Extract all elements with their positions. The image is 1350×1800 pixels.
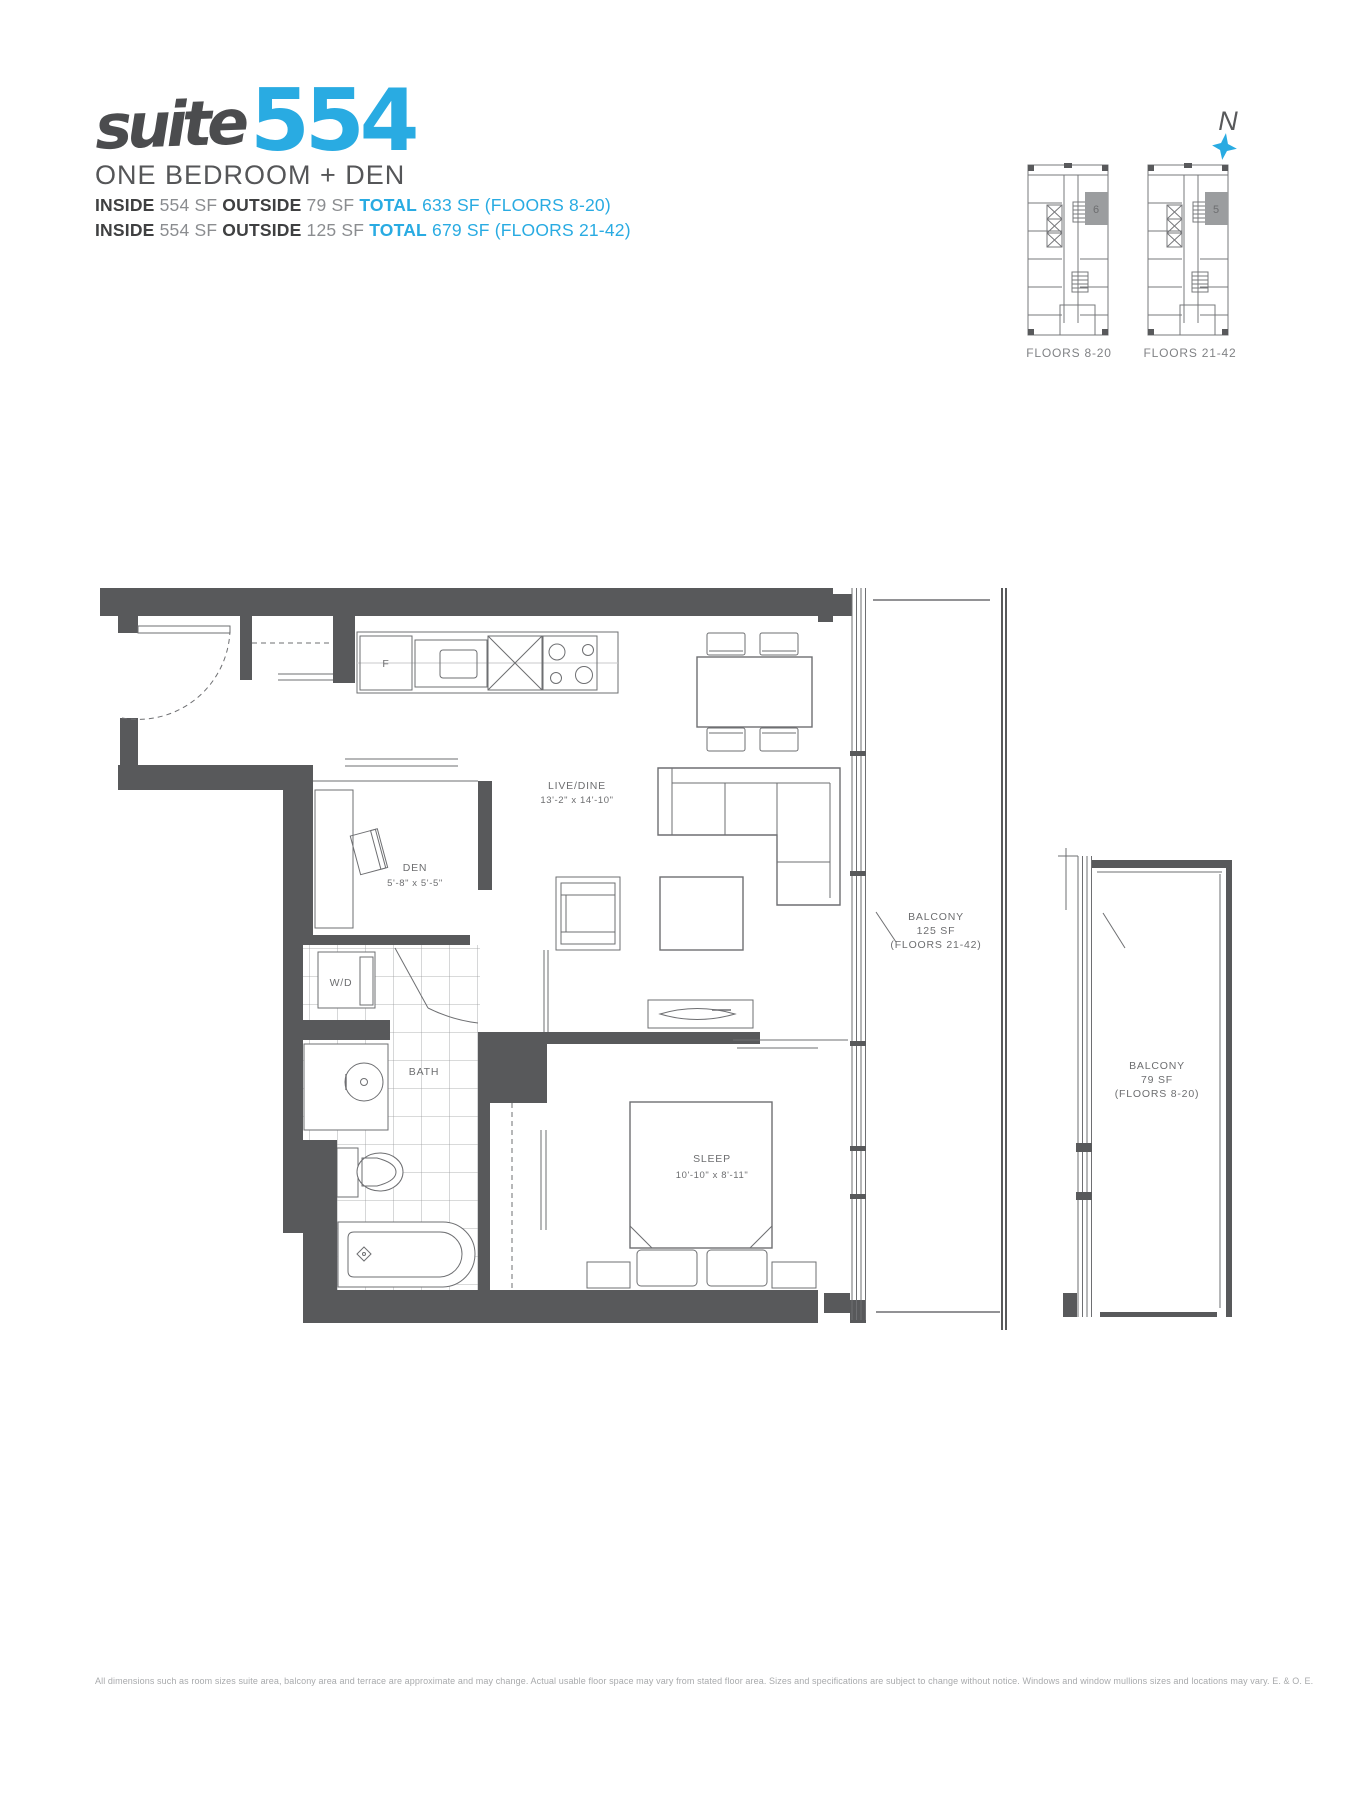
dining-table: [697, 633, 812, 751]
walls: [100, 588, 866, 1323]
wd-closet: W/D: [318, 952, 375, 1008]
balcony-79: BALCONY 79 SF (FLOORS 8-20): [1058, 848, 1232, 1317]
keyplan-floors-21-42: 5 FLOORS 21-42: [1144, 163, 1237, 360]
media-console: [648, 1000, 753, 1028]
keyplan-label: FLOORS 21-42: [1144, 346, 1237, 360]
bathtub: [338, 1222, 475, 1287]
den: [313, 759, 478, 928]
live-dine-label: LIVE/DINE: [548, 780, 606, 792]
coffee-table: [660, 877, 743, 950]
fridge-label: F: [382, 658, 389, 670]
floorplan-page: suite 554 ONE BEDROOM + DEN INSIDE 554 S…: [0, 0, 1350, 1800]
den-dims: 5'-8" x 5'-5": [387, 878, 443, 889]
balcony-125-name: BALCONY: [908, 911, 964, 923]
balcony-125-floors: (FLOORS 21-42): [890, 939, 981, 951]
balcony-125: BALCONY 125 SF (FLOORS 21-42): [873, 588, 1007, 1330]
north-arrow-icon: N: [1210, 106, 1239, 162]
nightstand: [772, 1262, 816, 1288]
den-label: DEN: [403, 862, 428, 874]
pillow: [637, 1250, 697, 1286]
kitchen: F: [357, 632, 618, 693]
floor-plan-svg: 6 FLOORS 8-20 5 FLOORS 21-42 N W/D: [0, 0, 1350, 1800]
balcony-125-area: 125 SF: [917, 925, 956, 937]
sofa: [658, 768, 840, 905]
bathroom-vanity: [304, 1044, 388, 1130]
keyplan-floors-8-20: 6 FLOORS 8-20: [1026, 163, 1112, 360]
tv-stand: [556, 877, 620, 950]
balcony-79-name: BALCONY: [1129, 1060, 1185, 1072]
bath-label: BATH: [409, 1066, 439, 1078]
wd-label: W/D: [330, 977, 353, 989]
keyplan-unit-number: 5: [1213, 204, 1219, 216]
window-wall: [850, 588, 866, 1320]
live-dine-dims: 13'-2" x 14'-10": [540, 795, 613, 806]
hall-line: [544, 950, 548, 1032]
balcony-79-floors: (FLOORS 8-20): [1115, 1088, 1200, 1100]
sleep-dims: 10'-10" x 8'-11": [676, 1170, 749, 1181]
keyplan-label: FLOORS 8-20: [1026, 346, 1112, 360]
entry-closet: [252, 643, 333, 680]
disclaimer-text: All dimensions such as room sizes suite …: [95, 1676, 1260, 1686]
entry-door: [122, 626, 230, 719]
balcony-79-area: 79 SF: [1141, 1074, 1173, 1086]
sleep-label: SLEEP: [693, 1153, 731, 1165]
keyplan-unit-number: 6: [1093, 204, 1099, 216]
den-chair: [350, 829, 387, 875]
kitchen-sink: [440, 650, 477, 678]
den-desk: [315, 790, 353, 928]
north-label: N: [1218, 106, 1238, 136]
bed: [630, 1102, 772, 1286]
nightstand: [587, 1262, 630, 1288]
pillow: [707, 1250, 767, 1286]
